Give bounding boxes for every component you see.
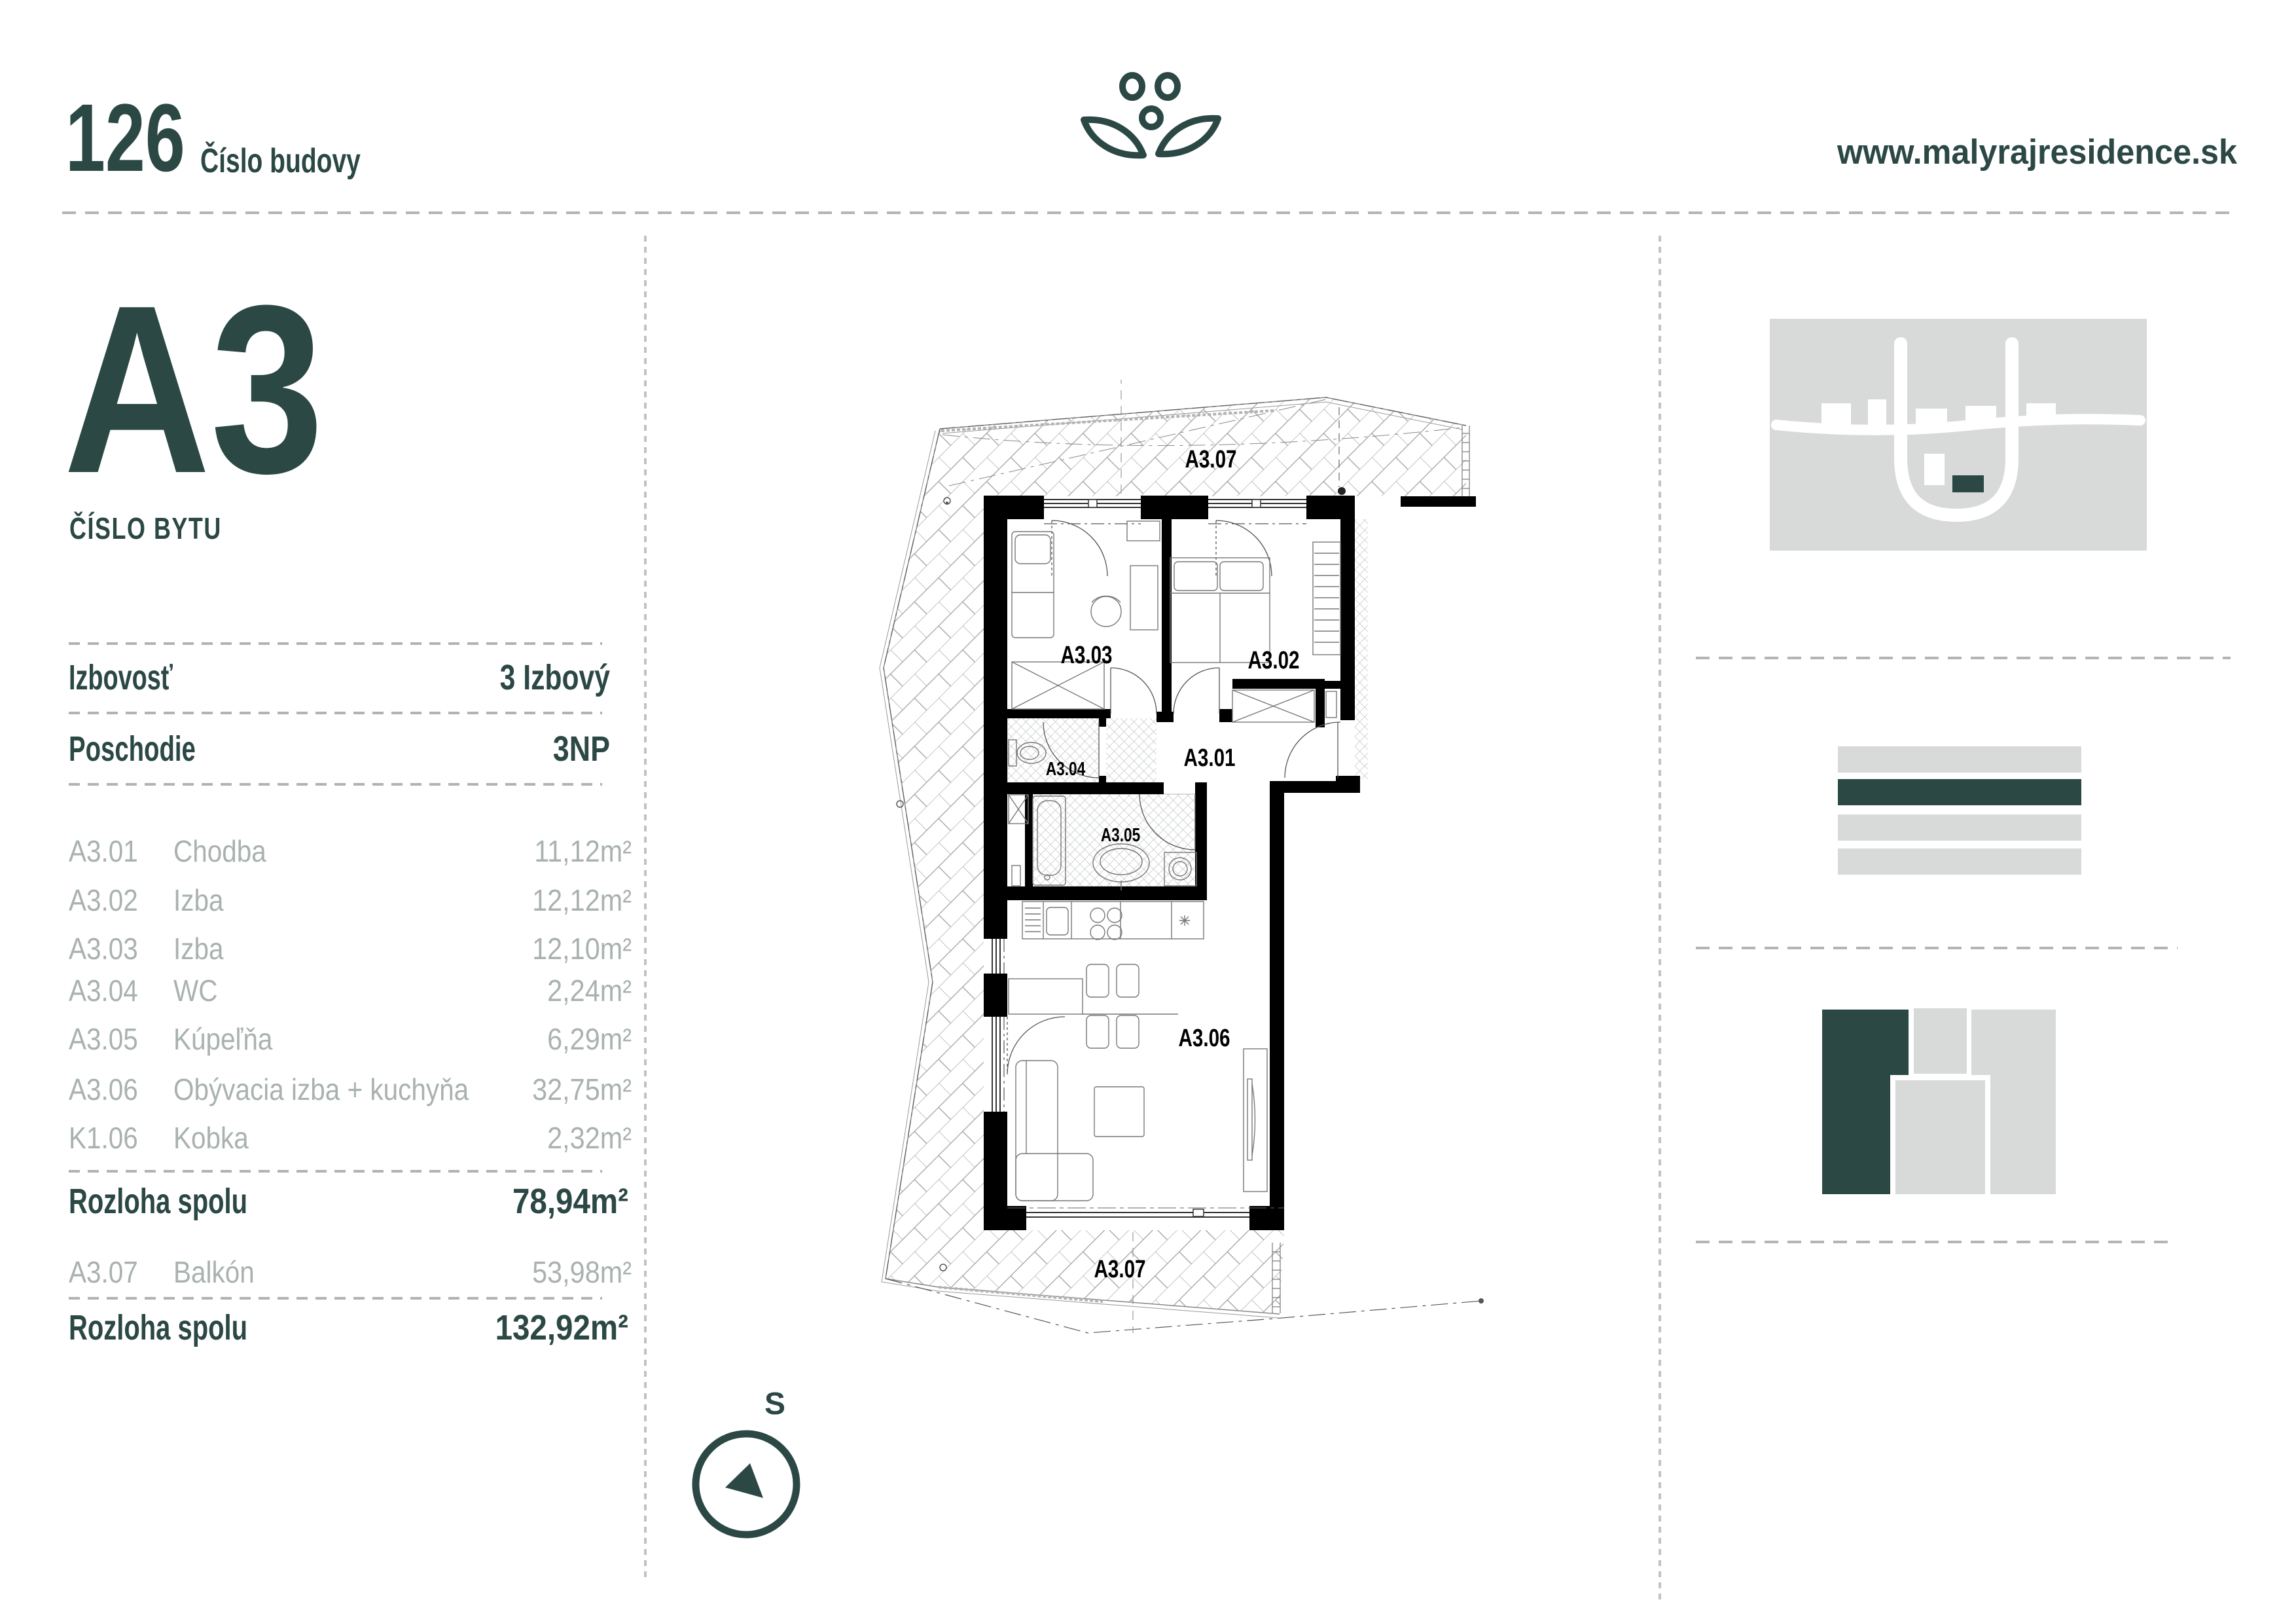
svg-text:A3.06: A3.06 (1178, 1025, 1230, 1052)
svg-text:A3.03: A3.03 (1060, 642, 1112, 669)
svg-text:A3.07: A3.07 (1185, 446, 1236, 473)
svg-text:A3.02: A3.02 (1247, 647, 1299, 674)
svg-text:A3.05: A3.05 (1101, 824, 1140, 845)
svg-text:S: S (764, 1387, 785, 1421)
svg-text:A3.04: A3.04 (1046, 757, 1086, 779)
svg-text:A3.01: A3.01 (1183, 744, 1235, 772)
svg-text:A3.07: A3.07 (1094, 1256, 1145, 1283)
